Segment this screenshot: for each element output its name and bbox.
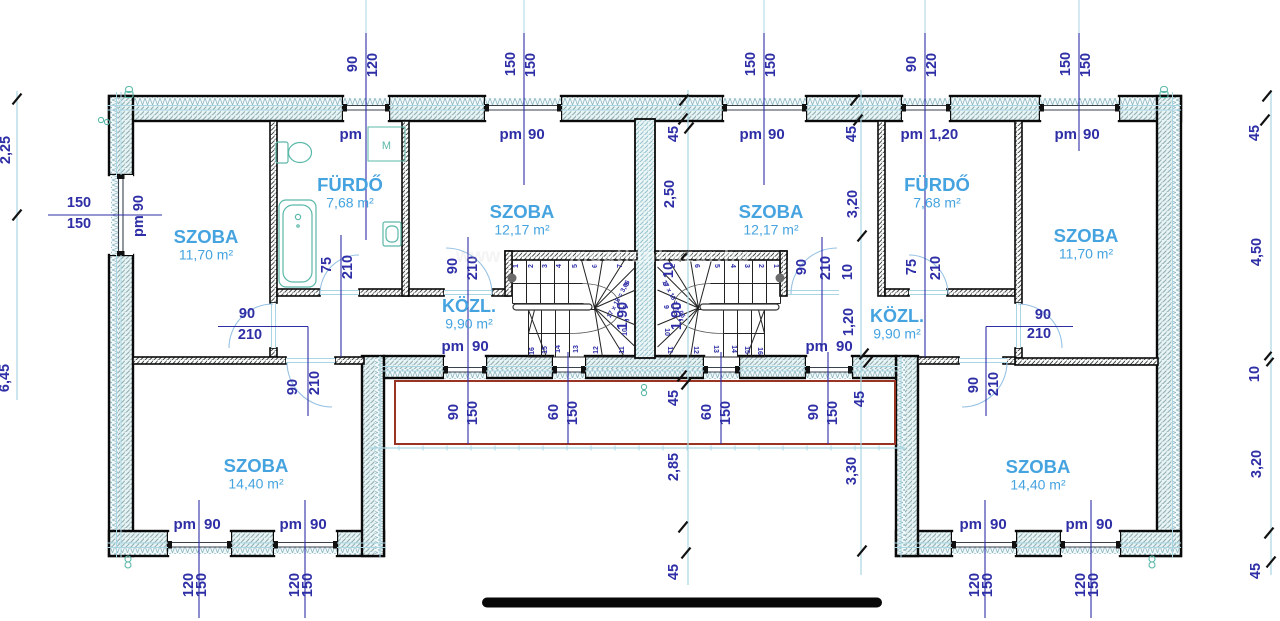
- svg-text:2,85: 2,85: [666, 453, 682, 481]
- svg-text:90: 90: [806, 404, 822, 420]
- svg-text:90: 90: [990, 516, 1007, 533]
- svg-text:210: 210: [1027, 326, 1051, 342]
- svg-text:90: 90: [1035, 307, 1051, 323]
- svg-text:150: 150: [763, 53, 779, 77]
- svg-text:10: 10: [1247, 366, 1263, 382]
- svg-text:3,30: 3,30: [844, 457, 860, 485]
- svg-text:150: 150: [1078, 53, 1094, 77]
- svg-text:11: 11: [666, 346, 673, 354]
- svg-text:150: 150: [743, 52, 759, 76]
- svg-text:pm 90: pm 90: [131, 195, 147, 237]
- svg-text:1: 1: [513, 264, 520, 268]
- svg-text:150: 150: [523, 53, 539, 77]
- svg-text:M: M: [382, 140, 391, 152]
- svg-text:pm: pm: [174, 516, 197, 533]
- svg-text:12,17 m²: 12,17 m²: [743, 222, 799, 238]
- svg-text:pm: pm: [442, 338, 465, 355]
- svg-text:90: 90: [966, 377, 982, 393]
- svg-text:FÜRDŐ: FÜRDŐ: [904, 174, 970, 195]
- svg-text:210: 210: [307, 371, 323, 395]
- svg-text:60: 60: [699, 404, 715, 420]
- svg-text:1,90: 1,90: [669, 302, 685, 330]
- svg-text:210: 210: [986, 372, 1002, 396]
- svg-text:SZOBA: SZOBA: [739, 201, 804, 222]
- svg-text:7,68 m²: 7,68 m²: [326, 195, 374, 211]
- svg-text:210: 210: [818, 256, 834, 280]
- svg-text:SZOBA: SZOBA: [490, 201, 555, 222]
- svg-text:ingatlanbazar.hu: ingatlanbazar.hu: [569, 246, 751, 267]
- svg-text:KÖZL.: KÖZL.: [870, 306, 924, 326]
- svg-text:45: 45: [1247, 125, 1263, 141]
- svg-text:pm: pm: [1055, 126, 1078, 143]
- svg-text:9,90 m²: 9,90 m²: [445, 316, 493, 332]
- svg-text:15: 15: [542, 346, 549, 354]
- svg-text:2: 2: [757, 264, 764, 268]
- svg-text:1,20: 1,20: [929, 126, 958, 143]
- svg-text:90: 90: [285, 379, 301, 395]
- svg-text:150: 150: [465, 401, 481, 425]
- svg-text:150: 150: [1086, 573, 1102, 597]
- svg-text:150: 150: [825, 401, 841, 425]
- svg-text:120: 120: [924, 53, 940, 77]
- svg-text:1,90: 1,90: [615, 302, 631, 330]
- svg-text:12: 12: [593, 346, 600, 354]
- svg-text:pm: pm: [1066, 516, 1089, 533]
- svg-text:90: 90: [528, 126, 545, 143]
- svg-text:90: 90: [768, 126, 785, 143]
- svg-text:210: 210: [340, 255, 356, 279]
- svg-text:SZOBA: SZOBA: [174, 226, 239, 247]
- svg-text:15: 15: [743, 346, 750, 354]
- svg-text:90: 90: [472, 338, 489, 355]
- svg-text:4: 4: [556, 264, 563, 268]
- svg-text:10: 10: [840, 264, 856, 280]
- svg-text:210: 210: [238, 327, 262, 343]
- svg-text:90: 90: [204, 516, 221, 533]
- svg-text:12: 12: [692, 346, 699, 354]
- svg-text:6,45: 6,45: [0, 364, 13, 392]
- svg-text:pm: pm: [500, 126, 523, 143]
- svg-text:14: 14: [555, 345, 562, 353]
- svg-text:210: 210: [928, 256, 944, 280]
- svg-text:45: 45: [1248, 563, 1264, 579]
- svg-text:13: 13: [573, 345, 580, 353]
- svg-text:150: 150: [67, 195, 91, 211]
- svg-text:90: 90: [1096, 516, 1113, 533]
- svg-text:11,70 m²: 11,70 m²: [179, 247, 234, 263]
- svg-text:45: 45: [844, 126, 860, 142]
- svg-text:90: 90: [836, 338, 853, 355]
- svg-text:150: 150: [503, 52, 519, 76]
- svg-text:150: 150: [194, 573, 210, 597]
- svg-text:pm: pm: [280, 516, 303, 533]
- svg-text:SZOBA: SZOBA: [1054, 225, 1119, 246]
- svg-text:2,25: 2,25: [0, 136, 14, 164]
- svg-text:14: 14: [730, 345, 737, 353]
- svg-text:4,50: 4,50: [1249, 238, 1265, 266]
- svg-text:45: 45: [666, 390, 682, 406]
- svg-text:90: 90: [310, 516, 327, 533]
- svg-text:pm: pm: [960, 516, 983, 533]
- svg-text:90: 90: [794, 259, 810, 275]
- svg-text:120: 120: [365, 53, 381, 77]
- svg-text:90: 90: [345, 56, 361, 72]
- svg-text:pm: pm: [740, 126, 763, 143]
- svg-text:9,90 m²: 9,90 m²: [873, 326, 921, 342]
- svg-text:2: 2: [528, 264, 535, 268]
- svg-text:13: 13: [712, 345, 719, 353]
- svg-text:14,40 m²: 14,40 m²: [228, 476, 284, 492]
- svg-text:14,40 m²: 14,40 m²: [1010, 477, 1066, 493]
- svg-text:75: 75: [319, 257, 335, 273]
- svg-text:SZOBA: SZOBA: [224, 455, 289, 476]
- svg-text:KÖZL.: KÖZL.: [442, 296, 496, 316]
- svg-text:2,50: 2,50: [662, 180, 678, 208]
- svg-text:3: 3: [542, 264, 549, 268]
- svg-text:150: 150: [718, 401, 734, 425]
- svg-text:150: 150: [67, 216, 91, 232]
- svg-text:45: 45: [666, 126, 682, 142]
- svg-text:1,20: 1,20: [841, 308, 857, 336]
- svg-text:SZOBA: SZOBA: [1006, 456, 1071, 477]
- svg-text:150: 150: [1058, 52, 1074, 76]
- svg-text:12,17 m²: 12,17 m²: [494, 222, 550, 238]
- svg-text:3,20: 3,20: [1249, 450, 1265, 478]
- svg-text:pm: pm: [340, 126, 363, 143]
- svg-text:pm: pm: [806, 338, 829, 355]
- svg-text:1: 1: [772, 264, 779, 268]
- svg-text:90: 90: [904, 56, 920, 72]
- svg-text:150: 150: [565, 401, 581, 425]
- svg-text:7,68 m²: 7,68 m²: [913, 195, 961, 211]
- svg-text:9: 9: [662, 305, 669, 309]
- svg-text:75: 75: [904, 259, 920, 275]
- svg-text:3,20: 3,20: [845, 190, 861, 218]
- svg-text:45: 45: [852, 391, 868, 407]
- svg-text:11: 11: [619, 346, 626, 354]
- svg-text:150: 150: [300, 573, 316, 597]
- svg-text:FÜRDŐ: FÜRDŐ: [317, 174, 383, 195]
- svg-text:90: 90: [446, 404, 462, 420]
- svg-text:45: 45: [666, 564, 682, 580]
- svg-text:11,70 m²: 11,70 m²: [1059, 246, 1114, 262]
- svg-text:90: 90: [239, 306, 255, 322]
- svg-text:90: 90: [1083, 126, 1100, 143]
- svg-text:60: 60: [546, 404, 562, 420]
- svg-text:16: 16: [756, 347, 763, 355]
- svg-text:16: 16: [529, 347, 536, 355]
- svg-text:www: www: [455, 246, 501, 267]
- svg-text:pm: pm: [901, 126, 924, 143]
- svg-text:150: 150: [980, 573, 996, 597]
